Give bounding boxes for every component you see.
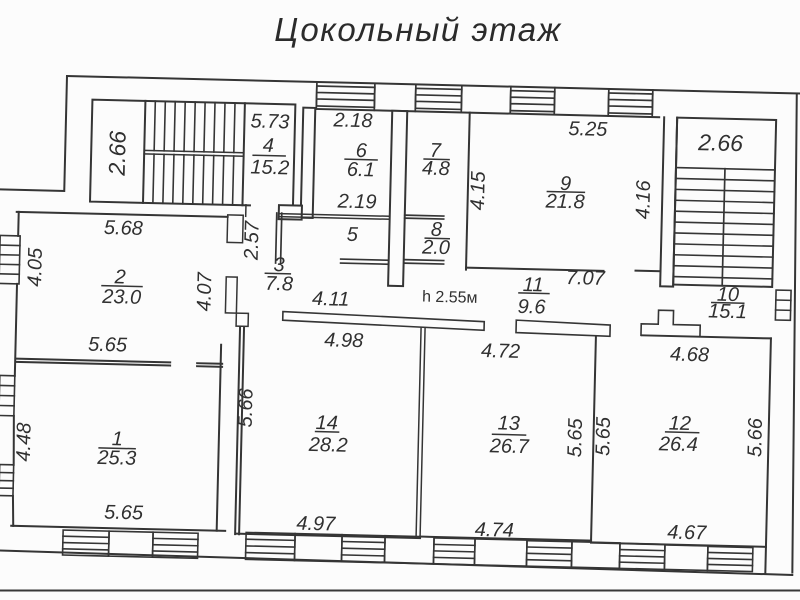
svg-text:28.2: 28.2	[308, 434, 348, 457]
svg-text:2.66: 2.66	[104, 130, 131, 177]
svg-text:5.68: 5.68	[104, 217, 143, 240]
svg-text:6.1: 6.1	[347, 159, 375, 182]
svg-text:5.65: 5.65	[592, 416, 615, 456]
svg-text:4.16: 4.16	[632, 179, 655, 219]
svg-text:4.48: 4.48	[13, 422, 36, 461]
svg-text:26.4: 26.4	[658, 433, 698, 456]
svg-text:4.05: 4.05	[24, 247, 47, 287]
svg-text:7.8: 7.8	[265, 273, 293, 296]
svg-text:5: 5	[346, 224, 359, 246]
svg-text:h 2.55м: h 2.55м	[422, 289, 478, 307]
svg-text:5.65: 5.65	[564, 417, 587, 457]
svg-text:13: 13	[497, 412, 520, 435]
svg-text:21.8: 21.8	[544, 190, 584, 213]
svg-text:4.15: 4.15	[467, 170, 490, 210]
svg-text:15.1: 15.1	[708, 300, 747, 323]
svg-text:2.0: 2.0	[421, 237, 450, 260]
svg-text:2.19: 2.19	[336, 190, 376, 213]
svg-text:4.97: 4.97	[296, 513, 336, 536]
svg-text:4.07: 4.07	[193, 271, 216, 311]
svg-text:5.73: 5.73	[250, 110, 289, 133]
svg-text:2: 2	[113, 266, 126, 288]
svg-text:5.65: 5.65	[88, 334, 128, 357]
svg-text:5.66: 5.66	[744, 417, 767, 457]
svg-text:5.25: 5.25	[568, 118, 608, 141]
svg-text:7.07: 7.07	[566, 267, 606, 290]
svg-text:4.68: 4.68	[670, 344, 709, 367]
svg-text:4.11: 4.11	[312, 288, 350, 311]
svg-text:25.3: 25.3	[96, 447, 136, 470]
svg-text:4.98: 4.98	[324, 329, 363, 352]
svg-text:26.7: 26.7	[489, 435, 530, 458]
svg-text:2.66: 2.66	[697, 129, 744, 156]
svg-text:Цокольный этаж: Цокольный этаж	[274, 11, 562, 48]
svg-text:4: 4	[263, 135, 275, 157]
svg-text:4.8: 4.8	[422, 158, 450, 181]
svg-text:9.6: 9.6	[517, 296, 546, 319]
svg-text:2.57: 2.57	[241, 220, 264, 261]
svg-text:5.66: 5.66	[235, 387, 258, 427]
svg-text:23.0: 23.0	[101, 286, 141, 309]
svg-text:4.67: 4.67	[667, 521, 707, 544]
svg-text:2.18: 2.18	[332, 109, 372, 132]
svg-text:4.72: 4.72	[481, 340, 520, 363]
svg-text:15.2: 15.2	[250, 156, 289, 179]
svg-text:5.65: 5.65	[104, 502, 144, 525]
